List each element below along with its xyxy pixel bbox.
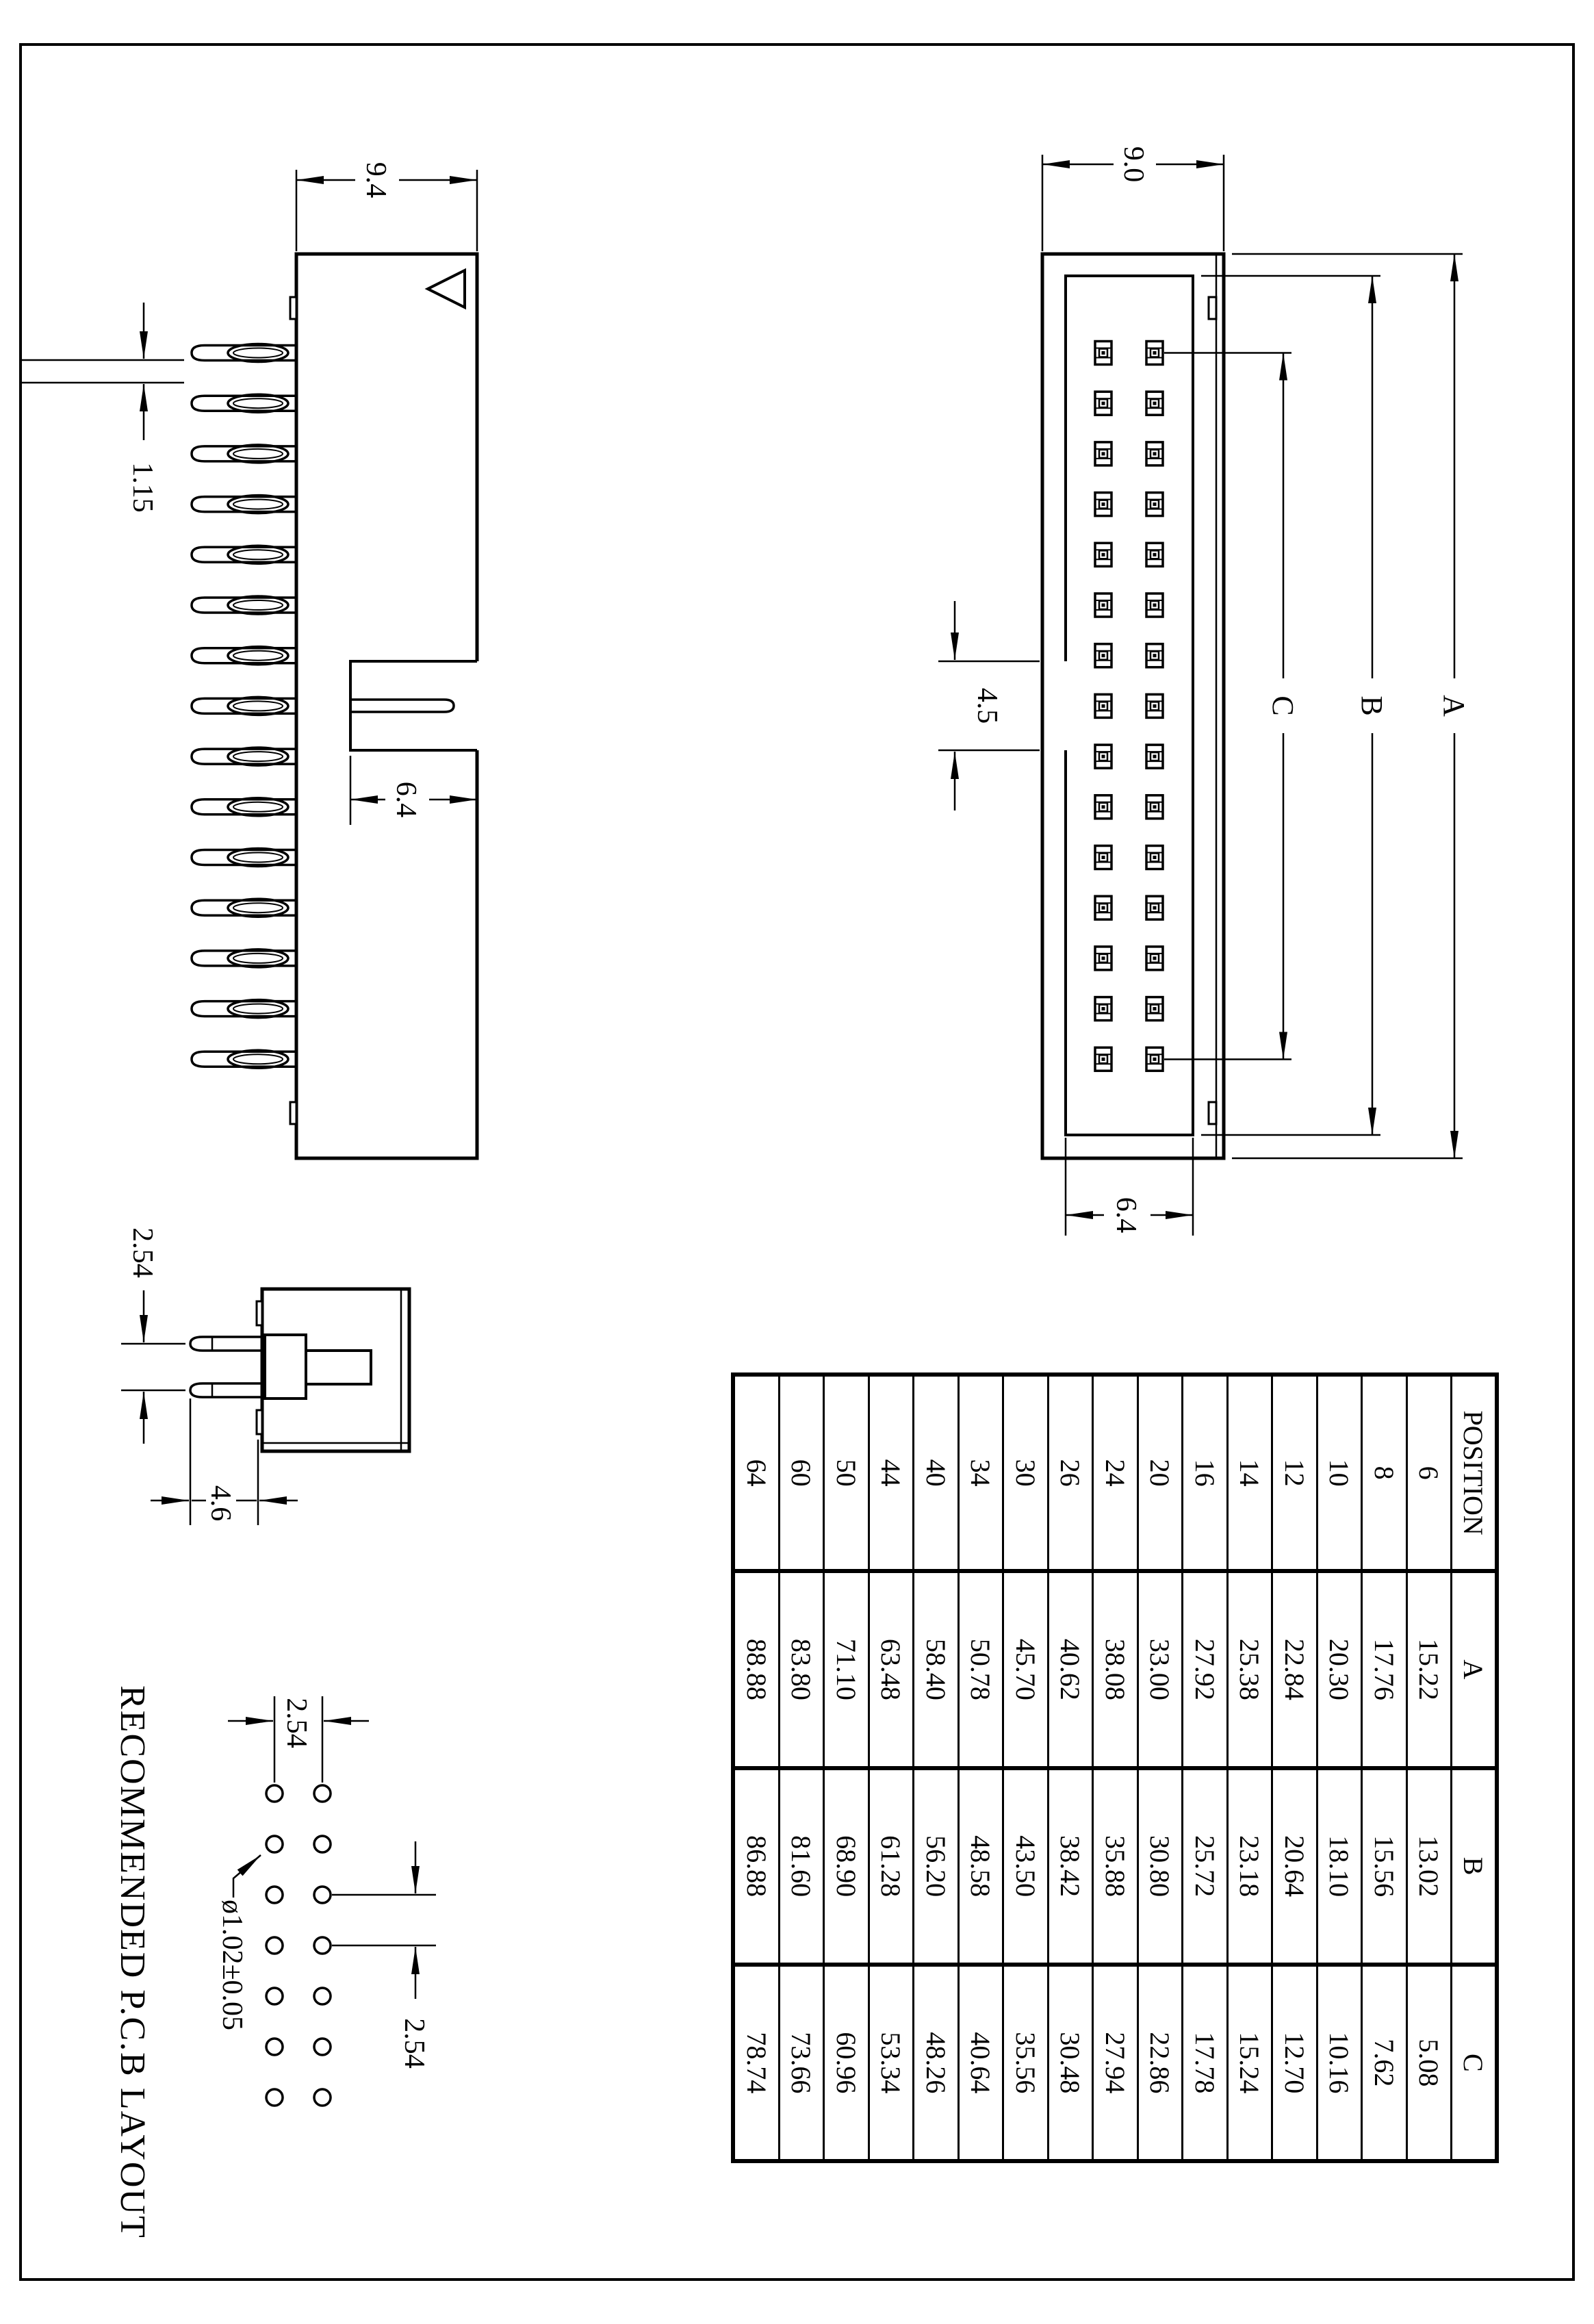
key-notch-left	[1209, 297, 1216, 319]
cell-position: 10	[1317, 1375, 1361, 1571]
cell-a: 40.62	[1048, 1571, 1092, 1767]
cell-c: 22.86	[1137, 1965, 1182, 2161]
tab-left	[290, 297, 296, 319]
cell-b: 25.72	[1183, 1768, 1227, 1965]
cell-a: 50.78	[958, 1571, 1003, 1767]
top-view-pin-grid	[1095, 342, 1163, 1071]
cell-c: 30.48	[1048, 1965, 1092, 2161]
drawing-page: 9.0 A B C 6.4 4.5 9.4 6.4 1.15	[0, 0, 1594, 2324]
cell-c: 35.56	[1003, 1965, 1048, 2161]
dim-pin-length: 4.6	[205, 1485, 236, 1522]
table-row: 64 88.88 86.88 78.74	[733, 1375, 779, 2161]
side-view	[20, 170, 477, 1158]
cell-a: 58.40	[914, 1571, 958, 1767]
dim-key-slot-width: 4.5	[971, 688, 1003, 724]
cell-a: 15.22	[1406, 1571, 1451, 1767]
side-view-pins	[192, 344, 296, 1069]
dim-row-pitch: 2.54	[281, 1698, 312, 1748]
table-row: 60 83.80 81.60 73.66	[779, 1375, 823, 2161]
cell-b: 35.88	[1093, 1768, 1137, 1965]
cell-position: 44	[869, 1375, 913, 1571]
dim-inner-length: B	[1355, 695, 1389, 715]
dim-cavity-width: 6.4	[1110, 1197, 1142, 1234]
table-row: 6 15.22 13.02 5.08	[1406, 1375, 1451, 2161]
cell-c: 27.94	[1093, 1965, 1137, 2161]
pcb-holes	[266, 1785, 331, 2106]
cell-b: 30.80	[1137, 1768, 1182, 1965]
header-b: B	[1452, 1768, 1497, 1965]
cell-b: 15.56	[1362, 1768, 1406, 1965]
cell-b: 38.42	[1048, 1768, 1092, 1965]
cell-c: 17.78	[1183, 1965, 1227, 2161]
table-row: 44 63.48 61.28 53.34	[869, 1375, 913, 2161]
cell-a: 27.92	[1183, 1571, 1227, 1767]
cell-position: 24	[1093, 1375, 1137, 1571]
hole-leader	[233, 1855, 261, 1898]
cell-b: 61.28	[869, 1768, 913, 1965]
cell-position: 64	[733, 1375, 779, 1571]
cell-a: 71.10	[824, 1571, 869, 1767]
cell-a: 45.70	[1003, 1571, 1048, 1767]
drawing-canvas: 9.0 A B C 6.4 4.5 9.4 6.4 1.15	[0, 0, 1594, 2324]
cell-b: 18.10	[1317, 1768, 1361, 1965]
table-row: 16 27.92 25.72 17.78	[1183, 1375, 1227, 2161]
cell-c: 15.24	[1227, 1965, 1272, 2161]
cell-b: 20.64	[1272, 1768, 1317, 1965]
table-row: 12 22.84 20.64 12.70	[1272, 1375, 1317, 2161]
cell-a: 20.30	[1317, 1571, 1361, 1767]
cell-b: 48.58	[958, 1768, 1003, 1965]
dim-overall-length: A	[1437, 695, 1471, 717]
header-a: A	[1452, 1571, 1497, 1767]
table-row: 24 38.08 35.88 27.94	[1093, 1375, 1137, 2161]
header-position: POSITION	[1452, 1375, 1497, 1571]
cell-b: 13.02	[1406, 1768, 1451, 1965]
cell-a: 38.08	[1093, 1571, 1137, 1767]
cell-position: 12	[1272, 1375, 1317, 1571]
tab-right	[290, 1102, 296, 1124]
cell-position: 34	[958, 1375, 1003, 1571]
cell-b: 43.50	[1003, 1768, 1048, 1965]
cell-c: 73.66	[779, 1965, 823, 2161]
cell-b: 81.60	[779, 1768, 823, 1965]
cell-position: 30	[1003, 1375, 1048, 1571]
table-row: 40 58.40 56.20 48.26	[914, 1375, 958, 2161]
dimension-table: POSITION A B C 6 15.22 13.02 5.08 8 17.7…	[731, 1372, 1499, 2163]
cell-c: 53.34	[869, 1965, 913, 2161]
cell-c: 48.26	[914, 1965, 958, 2161]
cell-position: 50	[824, 1375, 869, 1571]
cell-c: 7.62	[1362, 1965, 1406, 2161]
cell-b: 86.88	[733, 1768, 779, 1965]
dim-pin-span: C	[1266, 695, 1300, 715]
header-c: C	[1452, 1965, 1497, 2161]
table-row: 34 50.78 48.58 40.64	[958, 1375, 1003, 2161]
cell-c: 10.16	[1317, 1965, 1361, 2161]
cell-position: 40	[914, 1375, 958, 1571]
cell-c: 5.08	[1406, 1965, 1451, 2161]
cell-position: 14	[1227, 1375, 1272, 1571]
table-row: 50 71.10 68.90 60.96	[824, 1375, 869, 2161]
cell-a: 22.84	[1272, 1571, 1317, 1767]
table-header-row: POSITION A B C	[1452, 1375, 1497, 2161]
cell-b: 23.18	[1227, 1768, 1272, 1965]
cell-position: 8	[1362, 1375, 1406, 1571]
dim-pin-pitch: 2.54	[127, 1227, 158, 1278]
table-row: 26 40.62 38.42 30.48	[1048, 1375, 1092, 2161]
cell-a: 83.80	[779, 1571, 823, 1767]
cell-c: 40.64	[958, 1965, 1003, 2161]
table-row: 14 25.38 23.18 15.24	[1227, 1375, 1272, 2161]
pcb-layout-title: RECOMMENDED P.C.B LAYOUT	[113, 1685, 152, 2239]
cell-c: 12.70	[1272, 1965, 1317, 2161]
cell-position: 16	[1183, 1375, 1227, 1571]
dim-pin-thickness: 1.15	[127, 462, 158, 513]
table-row: 30 45.70 43.50 35.56	[1003, 1375, 1048, 2161]
key-notch-right	[1209, 1102, 1216, 1124]
dim-column-pitch: 2.54	[398, 2018, 430, 2069]
front-view	[121, 1289, 409, 1525]
cell-c: 60.96	[824, 1965, 869, 2161]
cell-b: 56.20	[914, 1768, 958, 1965]
cell-position: 26	[1048, 1375, 1092, 1571]
table-row: 20 33.00 30.80 22.86	[1137, 1375, 1182, 2161]
cell-position: 20	[1137, 1375, 1182, 1571]
dim-body-depth: 9.4	[360, 162, 391, 199]
dim-body-width: 9.0	[1118, 146, 1149, 183]
table-row: 8 17.76 15.56 7.62	[1362, 1375, 1406, 2161]
cell-a: 25.38	[1227, 1571, 1272, 1767]
cell-a: 63.48	[869, 1571, 913, 1767]
cell-a: 17.76	[1362, 1571, 1406, 1767]
cell-a: 33.00	[1137, 1571, 1182, 1767]
pin1-marker-triangle	[428, 270, 465, 307]
cell-b: 68.90	[824, 1768, 869, 1965]
hole-diameter-label: ø1.02±0.05	[216, 1900, 248, 2030]
dim-slot-depth: 6.4	[390, 782, 422, 818]
cell-position: 6	[1406, 1375, 1451, 1571]
table-row: 10 20.30 18.10 10.16	[1317, 1375, 1361, 2161]
cell-position: 60	[779, 1375, 823, 1571]
cell-a: 88.88	[733, 1571, 779, 1767]
cell-c: 78.74	[733, 1965, 779, 2161]
